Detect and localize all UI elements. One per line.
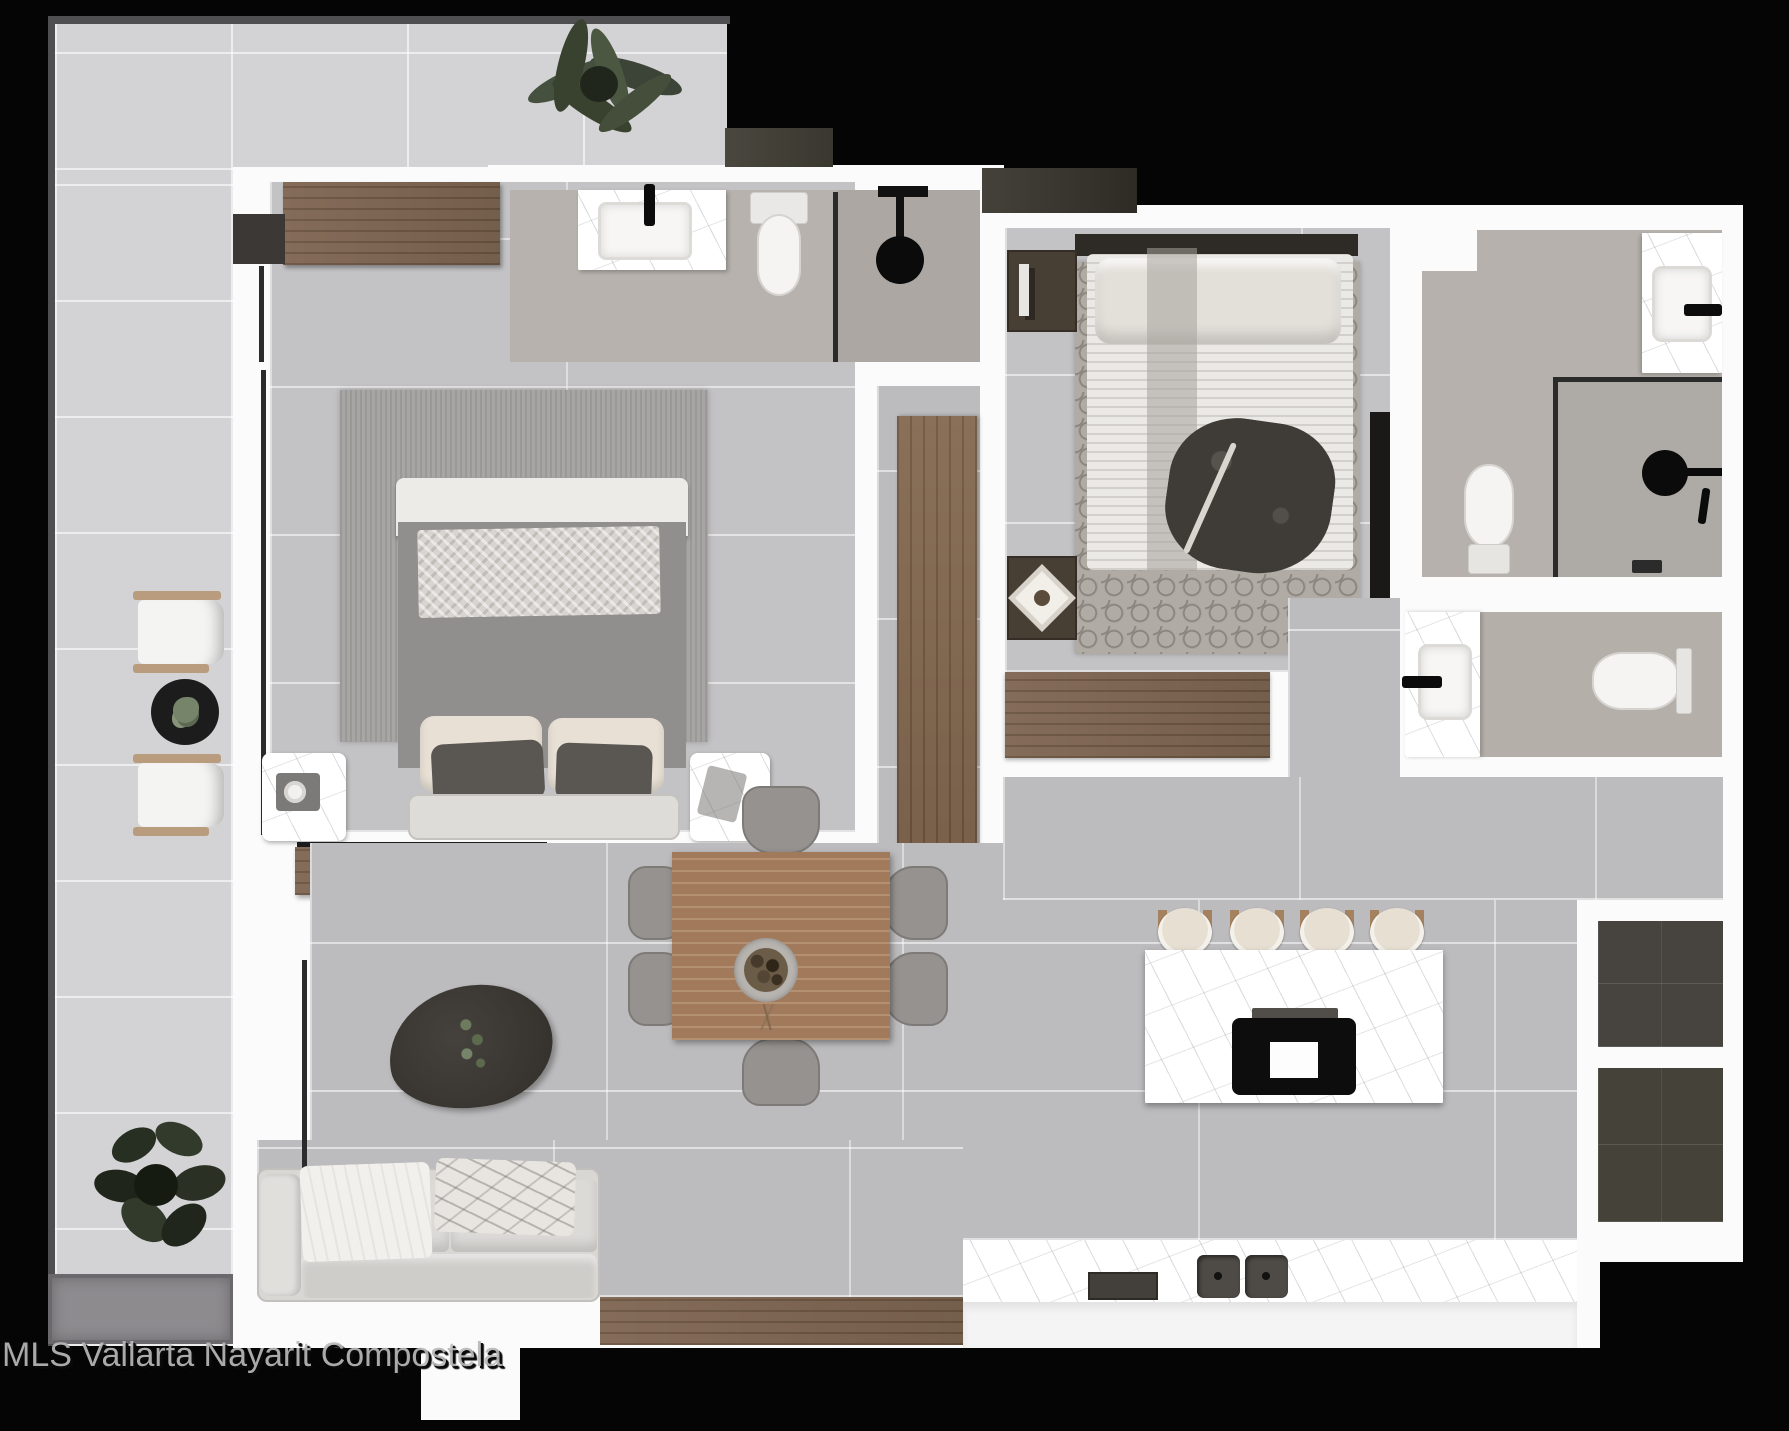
pillow-row — [1095, 258, 1341, 344]
kitchen-sink-left — [1197, 1255, 1240, 1298]
ensuite-faucet — [644, 184, 655, 226]
hallway-floor — [1288, 598, 1400, 779]
cooktop — [1232, 1018, 1356, 1095]
bathroom2-shower-head — [1642, 450, 1688, 496]
nightstand-marble-left — [262, 753, 346, 841]
kitchen-counter-cabinet — [963, 1302, 1577, 1348]
floor-plan-rendering: MLS Vallarta Nayarit Compostela — [0, 0, 1789, 1431]
palm-plant — [528, 8, 678, 168]
bar-stool-1 — [1158, 908, 1212, 956]
round-side-table — [151, 679, 219, 745]
bathroom2-toilet — [1462, 464, 1516, 576]
kitchen-sink-right — [1245, 1255, 1288, 1298]
terrace-border-left — [48, 16, 55, 1346]
bedroom2-closet — [1005, 672, 1270, 758]
kitchen-appliance — [1088, 1272, 1158, 1300]
ensuite-shower-head — [876, 236, 924, 284]
bedroom2-dresser — [1007, 556, 1077, 640]
dining-chair-top — [742, 786, 820, 854]
watermark-text: MLS Vallarta Nayarit Compostela — [2, 1336, 502, 1375]
master-corner-cabinet — [233, 214, 285, 264]
ensuite-toilet — [750, 192, 808, 298]
sofa-throw-white — [299, 1162, 432, 1262]
patio-dark-tile-2 — [1598, 1068, 1723, 1222]
dining-chair-right-2 — [884, 952, 948, 1026]
bedroom2-nightstand — [1007, 250, 1077, 332]
headboard-bench — [408, 794, 680, 840]
roof-block-right — [982, 168, 1137, 213]
bathroom2-notch — [1422, 230, 1477, 271]
planter-box — [48, 1274, 234, 1344]
decor-twig — [742, 1004, 794, 1030]
dining-table — [672, 852, 890, 1040]
bathroom2-shower-floor — [1558, 382, 1722, 577]
bathroom2-shower-arm — [1684, 468, 1722, 476]
herringbone-throw — [417, 526, 660, 618]
dining-chair-bottom — [742, 1038, 820, 1106]
leafy-plant — [92, 1122, 232, 1272]
bar-stool-3 — [1300, 908, 1354, 956]
master-bed — [396, 478, 688, 842]
sofa-throw-marbled — [434, 1158, 576, 1237]
entry-wood-floor — [600, 1297, 963, 1345]
bar-stool-2 — [1230, 908, 1284, 956]
bathroom3-toilet — [1592, 648, 1694, 714]
fruit-bowl-berries — [744, 948, 788, 992]
bar-stool-4 — [1370, 908, 1424, 956]
bedroom2-bed — [1087, 248, 1353, 570]
sofa-armrest-left — [261, 1174, 301, 1296]
bathroom2-faucet — [1684, 304, 1722, 316]
dining-chair-right-1 — [884, 866, 948, 940]
greatroom-floor-right — [1003, 777, 1723, 900]
sofa — [257, 1168, 600, 1302]
master-closet-wood — [897, 416, 977, 916]
lounge-chair-2 — [133, 754, 227, 842]
master-door-leaf — [259, 266, 264, 362]
bathroom2-drain — [1632, 560, 1662, 573]
lounge-chair-1 — [133, 591, 227, 679]
patio-dark-tile-1 — [1598, 921, 1723, 1047]
master-wardrobe — [283, 182, 500, 265]
bathroom3-faucet — [1402, 676, 1442, 688]
roof-block-left — [725, 128, 833, 167]
